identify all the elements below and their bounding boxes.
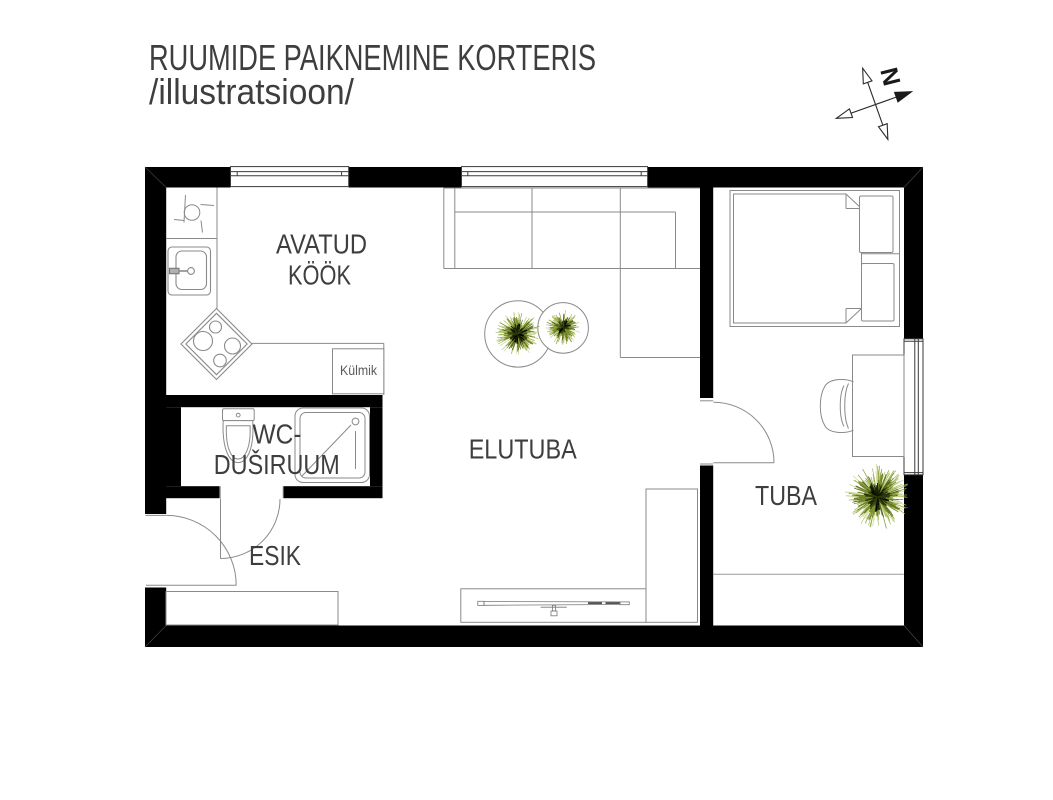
svg-text:Külmik: Külmik — [340, 362, 378, 378]
svg-text:AVATUD: AVATUD — [276, 229, 367, 260]
svg-text:ELUTUBA: ELUTUBA — [469, 434, 578, 465]
svg-text:/illustratsioon/: /illustratsioon/ — [149, 71, 355, 112]
svg-text:ESIK: ESIK — [249, 540, 302, 571]
svg-text:KÖÖK: KÖÖK — [288, 259, 352, 290]
svg-text:TUBA: TUBA — [755, 480, 818, 511]
svg-text:WC-: WC- — [253, 419, 302, 450]
svg-text:DUŠIRUUM: DUŠIRUUM — [214, 449, 340, 480]
svg-text:N: N — [874, 65, 904, 89]
